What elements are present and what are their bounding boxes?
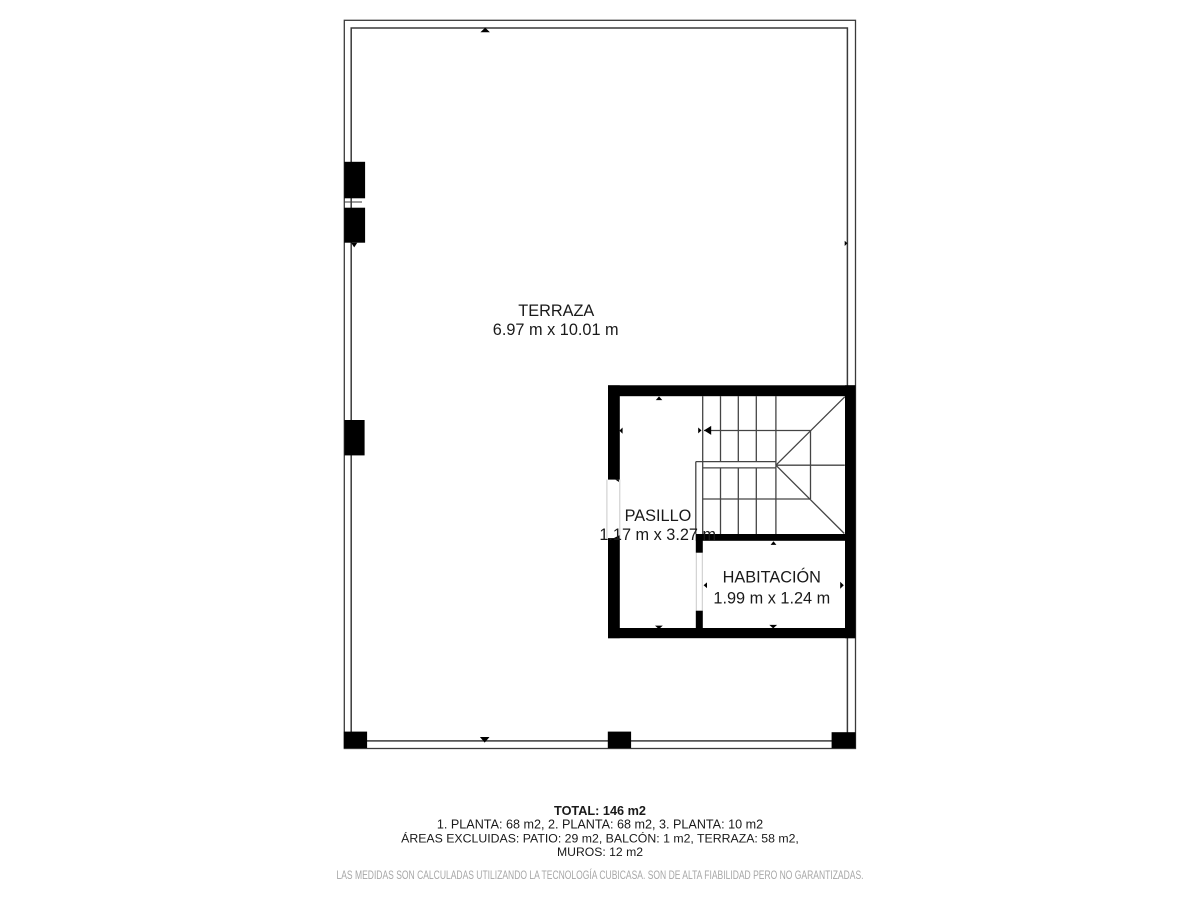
- svg-text:PASILLO: PASILLO: [625, 507, 692, 525]
- svg-text:MUROS: 12 m2: MUROS: 12 m2: [557, 845, 643, 859]
- svg-text:1. PLANTA: 68 m2, 2. PLANTA: 6: 1. PLANTA: 68 m2, 2. PLANTA: 68 m2, 3. P…: [437, 818, 763, 832]
- svg-text:LAS MEDIDAS SON CALCULADAS UTI: LAS MEDIDAS SON CALCULADAS UTILIZANDO LA…: [337, 868, 864, 882]
- svg-text:ÁREAS EXCLUIDAS: PATIO: 29 m2,: ÁREAS EXCLUIDAS: PATIO: 29 m2, BALCÓN: 1…: [401, 831, 799, 846]
- svg-text:1.17 m x 3.27 m: 1.17 m x 3.27 m: [599, 526, 716, 544]
- svg-text:1.99 m x 1.24 m: 1.99 m x 1.24 m: [713, 590, 830, 608]
- svg-text:TOTAL: 146 m2: TOTAL: 146 m2: [554, 804, 646, 818]
- svg-text:6.97 m x 10.01 m: 6.97 m x 10.01 m: [493, 321, 619, 339]
- svg-text:TERRAZA: TERRAZA: [518, 302, 594, 320]
- svg-text:HABITACIÓN: HABITACIÓN: [723, 567, 821, 586]
